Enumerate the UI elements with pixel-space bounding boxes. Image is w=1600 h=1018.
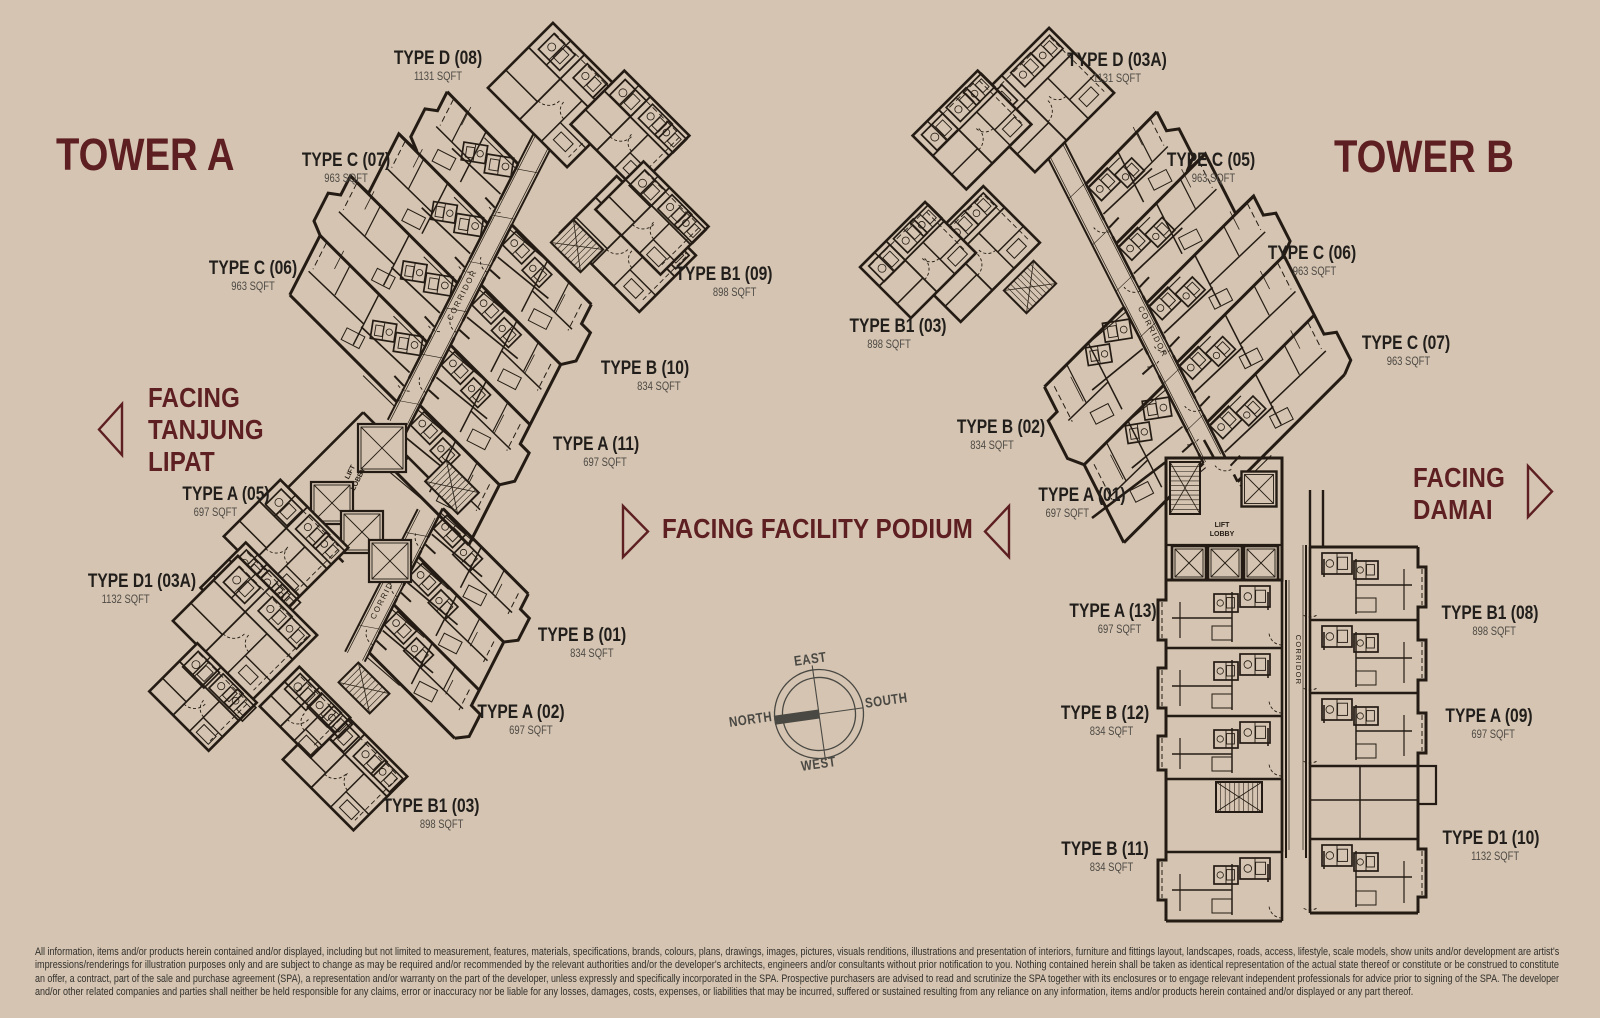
- svg-text:LOBBY: LOBBY: [1210, 531, 1235, 538]
- svg-text:CORRIDOR: CORRIDOR: [1294, 635, 1303, 685]
- svg-text:LIFT: LIFT: [1215, 522, 1230, 529]
